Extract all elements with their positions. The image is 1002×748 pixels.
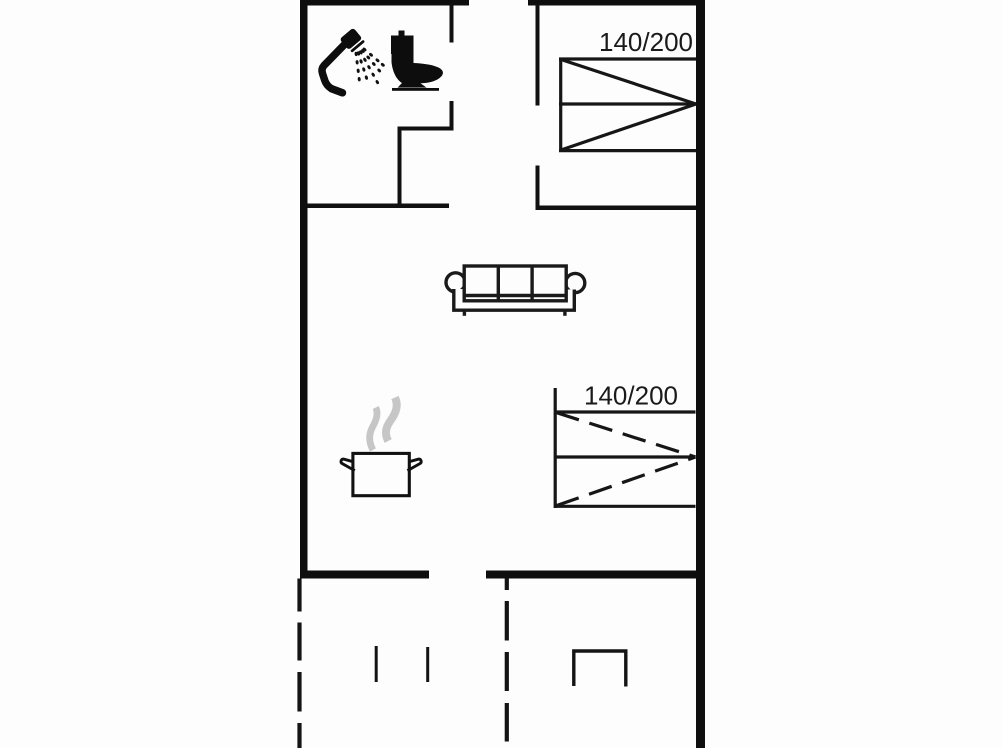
svg-text:140/200: 140/200 bbox=[584, 381, 678, 411]
svg-text:140/200: 140/200 bbox=[599, 27, 693, 57]
